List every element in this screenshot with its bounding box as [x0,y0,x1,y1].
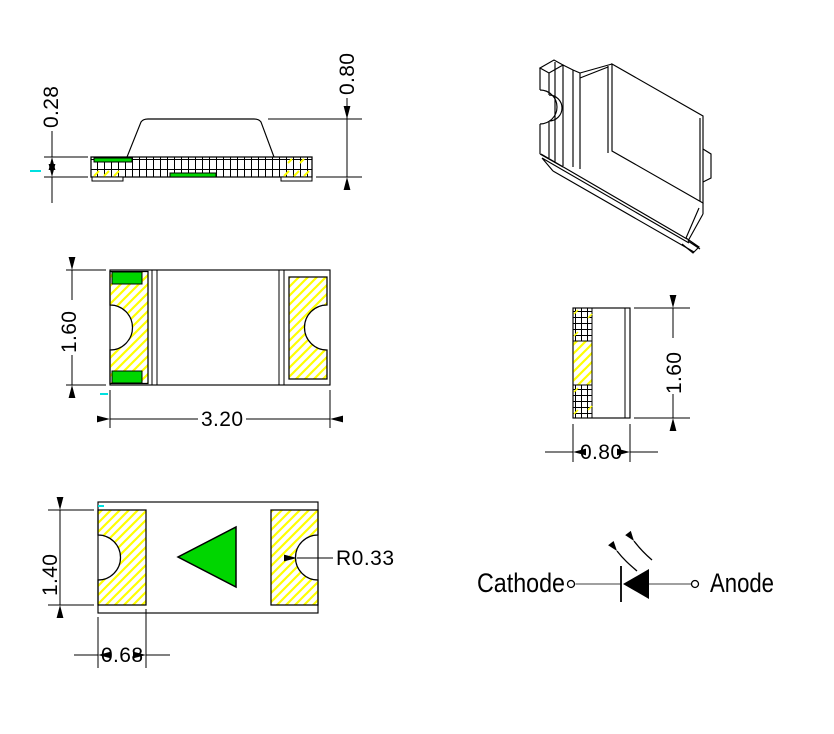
iso-endcap-notched-edge [540,68,563,167]
diode-triangle [623,569,649,599]
dim-text-3-20: 3.20 [201,408,243,431]
dim-body-height: 1.60 [58,270,106,385]
anode-label: Anode [710,568,774,598]
end-terminal-hatch [573,341,592,385]
top-view: 1.60 3.20 [58,270,330,431]
dim-pad-width: 0.68 [74,609,170,668]
schematic-symbol: Cathode Anode [477,541,774,602]
dim-text-1-60-end: 1.60 [663,352,686,394]
dim-end-height: 1.60 [634,308,690,418]
cathode-label: Cathode [477,568,565,598]
bottom-view: 1.40 0.68 R0.33 [39,502,394,668]
iso-top-edges [580,64,612,78]
drawing-canvas: 0.28 0.80 1 [0,0,834,734]
end-view: 1.60 0.80 [545,308,690,464]
iso-endcap-top-face [540,60,563,73]
dim-text-r0-33: R0.33 [336,547,394,570]
cathode-terminal [568,581,575,588]
iso-endcap-plates [555,62,580,169]
led-package-drawing: 0.28 0.80 1 [0,0,834,734]
cathode-mark-top [112,272,142,284]
dim-end-width: 0.80 [545,424,658,464]
dim-body-width: 3.20 [110,390,330,431]
dim-text-0-28: 0.28 [40,86,63,128]
light-emission-arrow-icon [634,541,652,560]
green-mark-top-left [94,158,132,162]
terminal-step-right [281,177,312,181]
lens-profile [127,119,274,157]
iso-far-end-foot [682,203,703,253]
dim-text-1-60-body: 1.60 [58,311,81,353]
side-view: 0.28 0.80 [30,53,362,203]
cathode-mark-bottom [112,371,142,383]
dim-text-0-80-height: 0.80 [336,53,359,95]
dim-text-0-68: 0.68 [101,644,143,667]
dim-substrate-thickness: 0.28 [40,86,88,203]
iso-anode-tab [703,149,711,182]
terminal-step-left [92,177,123,181]
light-emission-arrow-icon [617,551,637,571]
isometric-view [540,60,711,253]
dim-text-0-80-width: 0.80 [580,441,622,464]
green-mark-bottom-center [170,173,216,177]
dim-text-1-40: 1.40 [39,554,62,596]
anode-terminal [692,581,699,588]
dim-pad-height: 1.40 [39,510,94,605]
iso-body-face [612,64,703,203]
